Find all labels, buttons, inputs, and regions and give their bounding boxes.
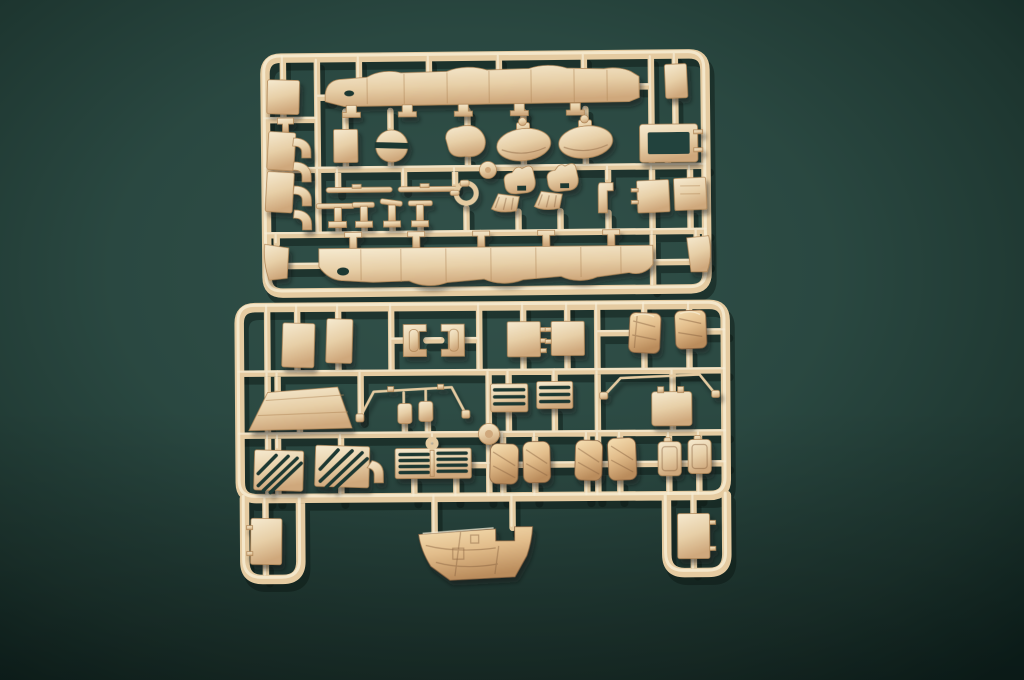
- bundle-2-body: [674, 310, 707, 349]
- t2-base: [355, 221, 372, 227]
- door-left-hinge1: [247, 526, 253, 530]
- bag-2-body: [523, 441, 551, 483]
- door-left-body: [250, 518, 281, 564]
- square-hatch-1: [507, 322, 546, 357]
- t4-stem: [416, 205, 423, 223]
- round-gate-a: [479, 161, 496, 178]
- hatch-right-hinge1: [658, 387, 664, 393]
- side-panel-a-tick1: [631, 188, 638, 192]
- side-panel-a-tick2: [631, 200, 638, 204]
- corner-plate-tr: [664, 64, 688, 99]
- square-hatch-2: [545, 321, 584, 355]
- intake-grille-2: [314, 445, 370, 489]
- jerry-can-1: [658, 438, 681, 476]
- wire-right-cap1: [600, 392, 608, 399]
- side-panel-a-body: [637, 180, 670, 213]
- sq2-nub2: [545, 340, 551, 344]
- photo-stage: [0, 0, 1024, 680]
- rect-panel-2: [326, 319, 353, 364]
- window-frame-tick-1: [694, 130, 703, 134]
- hatch-right-hinge2: [678, 387, 684, 393]
- wire-left-clip1: [388, 387, 394, 392]
- window-frame-part: [639, 124, 702, 163]
- slatted-rack-1: [491, 384, 528, 412]
- rod-1-nub: [352, 184, 361, 188]
- side-panel-b: [674, 177, 707, 210]
- center-grille-divider: [430, 450, 434, 476]
- square-hatch-2-body: [551, 321, 584, 355]
- round-hatch-slot: [375, 142, 409, 149]
- stowage-bundle-2: [674, 310, 707, 349]
- door-right-body: [678, 513, 710, 558]
- mirror-housing-1: [398, 403, 412, 423]
- step-plate-2: [265, 171, 294, 213]
- step-plate-1: [267, 131, 296, 171]
- t3-base: [383, 221, 400, 227]
- clevis-arm: [450, 190, 459, 195]
- window-frame-hole: [648, 132, 690, 154]
- intake-grille-1: [253, 449, 304, 492]
- t2-stem: [360, 206, 367, 223]
- window-frame-tick-2: [694, 148, 703, 152]
- stowage-bag-3: [574, 440, 603, 481]
- stowage-bundle-1: [628, 312, 661, 354]
- t3-stem: [388, 205, 395, 223]
- stowage-bag-1: [489, 443, 519, 484]
- square-hatch-1-body: [507, 322, 540, 357]
- t4-base: [411, 221, 428, 227]
- turret-1-knob: [518, 118, 526, 126]
- hatch-rect-panel: [334, 129, 358, 162]
- mud-flap-left: [264, 244, 289, 280]
- door-right-hinge1: [710, 520, 716, 524]
- sq2-nub1: [545, 328, 551, 332]
- sprue-photo: [0, 0, 1024, 680]
- corner-access-panel: [267, 80, 300, 115]
- wire-right-cap2: [712, 390, 720, 397]
- jerry-can-2: [688, 435, 711, 473]
- mirror-housing-2: [419, 401, 433, 421]
- wire-left-cap1: [356, 414, 364, 422]
- wire-left-cap2: [462, 410, 470, 418]
- mantlet-blob: [446, 125, 486, 156]
- turret-2-knob: [580, 115, 588, 123]
- hatch-right-body: [652, 392, 692, 426]
- round-gate-b-dimple: [485, 430, 493, 438]
- door-left-hinge2: [247, 552, 253, 556]
- sq1-nub3: [540, 349, 546, 353]
- bundle-1-body: [628, 312, 661, 353]
- clevis-top: [460, 180, 469, 186]
- square-hatch-right: [652, 387, 692, 426]
- door-right-hinge2: [710, 546, 716, 550]
- rect-panel-1: [282, 323, 315, 368]
- fitting-1-hole: [517, 186, 526, 191]
- sprue-a: [262, 51, 711, 300]
- door-panel-left: [247, 518, 283, 565]
- clamp-2-roller: [449, 329, 458, 351]
- bag-3-body: [575, 440, 603, 481]
- t1-base: [329, 221, 347, 227]
- fitting-2-hole: [560, 183, 569, 188]
- slatted-rack-2: [537, 381, 573, 408]
- stowage-bag-2: [523, 441, 551, 483]
- wire-left-clip2: [438, 384, 444, 389]
- bag-1-body: [490, 443, 519, 484]
- rod-2-nub: [420, 184, 429, 188]
- mud-flap-right: [687, 236, 711, 272]
- clamp-1-roller: [409, 329, 418, 351]
- round-gate-b: [478, 423, 499, 444]
- stowage-bag-4: [607, 437, 637, 480]
